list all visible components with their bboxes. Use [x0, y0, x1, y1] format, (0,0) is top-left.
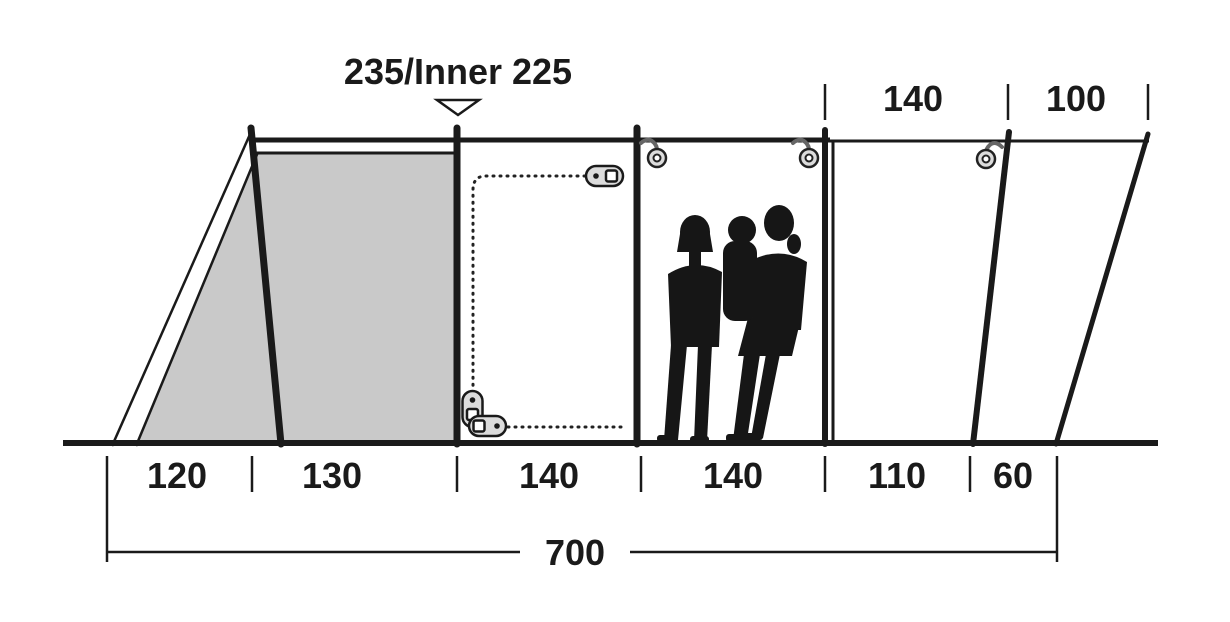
ring-hook-icon — [977, 143, 1002, 168]
zip-puller-icon — [586, 166, 623, 186]
rear-slanted-pole — [973, 132, 1009, 444]
zip-puller-icon — [469, 416, 506, 436]
bottom-dimension-130-label: 130 — [302, 455, 362, 496]
dotted-zip-line — [473, 176, 626, 427]
door-zip-path-top — [473, 176, 585, 390]
diagram-canvas: 235/Inner 225 140 100 — [0, 0, 1230, 622]
tent-dimension-diagram: 235/Inner 225 140 100 — [0, 0, 1230, 622]
ring-hook-icon — [793, 140, 818, 167]
bottom-dimension-120-label: 120 — [147, 455, 207, 496]
total-length-label: 700 — [545, 532, 605, 573]
ring-hook-icon — [641, 140, 666, 167]
top-dimension-140-label: 140 — [883, 78, 943, 119]
height-dimension-label: 235/Inner 225 — [344, 51, 572, 92]
top-dimension-100-label: 100 — [1046, 78, 1106, 119]
total-length-dimension: 700 — [107, 532, 1057, 573]
family-silhouette — [657, 205, 807, 443]
top-dimension-group: 140 100 — [825, 78, 1148, 120]
down-triangle-icon — [437, 100, 479, 115]
bottom-dimension-60-label: 60 — [993, 455, 1033, 496]
rear-slope-line — [1056, 134, 1148, 444]
inner-tent-panel — [136, 153, 457, 444]
bottom-dimension-140a-label: 140 — [519, 455, 579, 496]
bottom-dimension-140b-label: 140 — [703, 455, 763, 496]
bottom-dimension-110-label: 110 — [868, 455, 926, 496]
